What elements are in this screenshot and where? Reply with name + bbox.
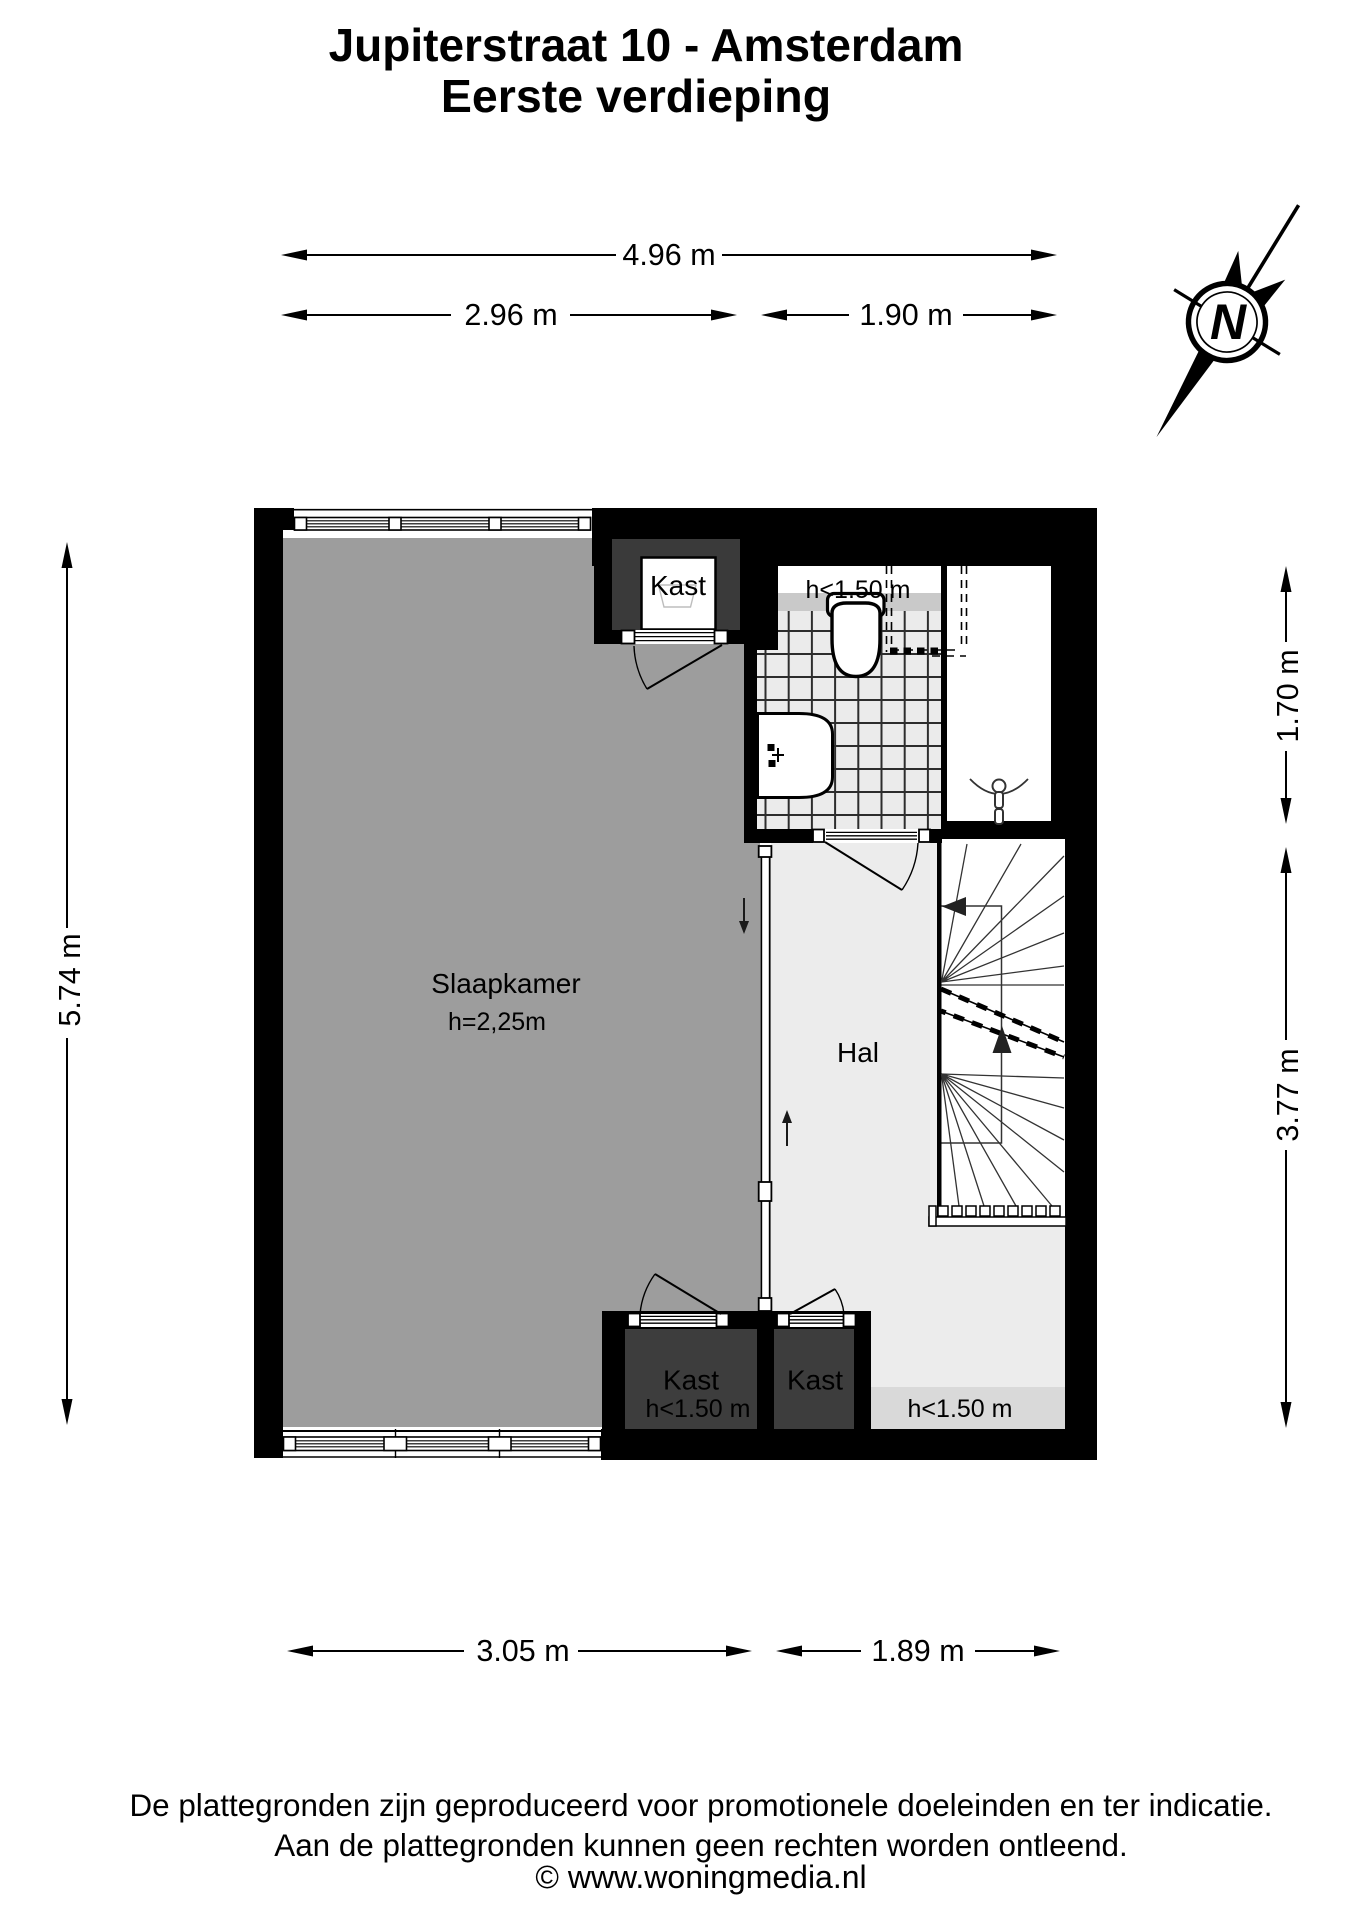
svg-text:1.70 m: 1.70 m [1271,649,1305,742]
svg-text:Kast: Kast [663,1365,719,1396]
svg-text:h<1.50 m: h<1.50 m [806,576,911,604]
svg-text:3.77 m: 3.77 m [1271,1048,1305,1141]
svg-text:Eerste verdieping: Eerste verdieping [441,70,831,122]
svg-text:1.89 m: 1.89 m [871,1634,964,1668]
svg-text:Hal: Hal [837,1037,879,1068]
svg-text:4.96 m: 4.96 m [622,238,715,272]
svg-text:Jupiterstraat 10 - Amsterdam: Jupiterstraat 10 - Amsterdam [329,19,964,71]
svg-text:Aan de plattegronden kunnen ge: Aan de plattegronden kunnen geen rechten… [274,1828,1127,1863]
svg-text:5.74 m: 5.74 m [53,933,87,1026]
svg-text:1.90 m: 1.90 m [859,298,952,332]
svg-text:2.96 m: 2.96 m [464,298,557,332]
svg-text:De plattegronden zijn geproduc: De plattegronden zijn geproduceerd voor … [129,1788,1272,1823]
svg-text:Slaapkamer: Slaapkamer [431,968,580,999]
svg-text:© www.woningmedia.nl: © www.woningmedia.nl [535,1859,866,1895]
svg-text:Kast: Kast [787,1365,843,1396]
svg-text:3.05 m: 3.05 m [476,1634,569,1668]
svg-text:Kast: Kast [650,570,706,601]
svg-text:h=2,25m: h=2,25m [448,1008,546,1036]
svg-text:h<1.50 m: h<1.50 m [908,1395,1013,1423]
svg-text:h<1.50 m: h<1.50 m [646,1395,751,1423]
svg-text:N: N [1210,294,1247,350]
